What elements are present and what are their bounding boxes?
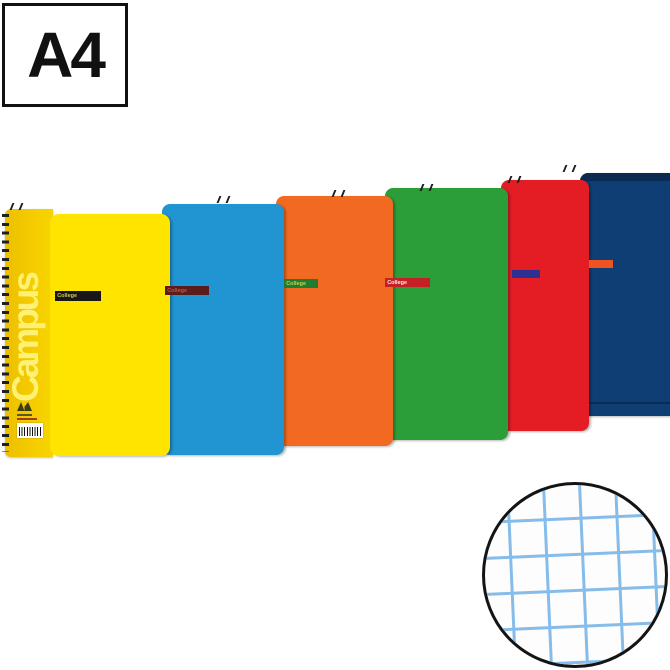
notebook-blue-label-band: College — [165, 286, 209, 295]
notebook-orange-label: College — [284, 281, 306, 287]
spiral-wire-icon — [217, 196, 231, 203]
brand-vertical-text: Campus — [6, 207, 46, 402]
product-image: A4 College College College Campus Colleg… — [0, 0, 670, 670]
notebook-orange-label-band: College — [284, 279, 318, 288]
notebook-yellow — [50, 214, 170, 456]
notebook-green-label: College — [385, 280, 407, 286]
barcode-icon — [17, 423, 43, 438]
notebook-yellow-label-band: College — [55, 291, 101, 301]
notebook-red-label-band — [512, 270, 540, 278]
notebook-green-label-band: College — [385, 278, 430, 287]
size-badge-text: A4 — [27, 23, 103, 87]
barcode-bars — [19, 427, 41, 436]
paper-detail-circle — [482, 482, 668, 668]
fine-print-line — [17, 414, 32, 416]
squared-grid-pattern — [482, 482, 668, 668]
notebook-blue-label: College — [165, 288, 187, 294]
fine-print-line — [17, 418, 37, 420]
notebook-red — [501, 180, 589, 431]
notebook-orange — [276, 196, 393, 446]
size-badge: A4 — [2, 3, 128, 107]
notebook-navy — [580, 173, 670, 416]
notebook-navy-label-band — [589, 260, 613, 268]
notebook-yellow-label: College — [55, 293, 77, 299]
notebook-blue — [162, 204, 284, 455]
notebook-green — [385, 188, 508, 440]
spiral-wire-icon — [563, 165, 577, 172]
